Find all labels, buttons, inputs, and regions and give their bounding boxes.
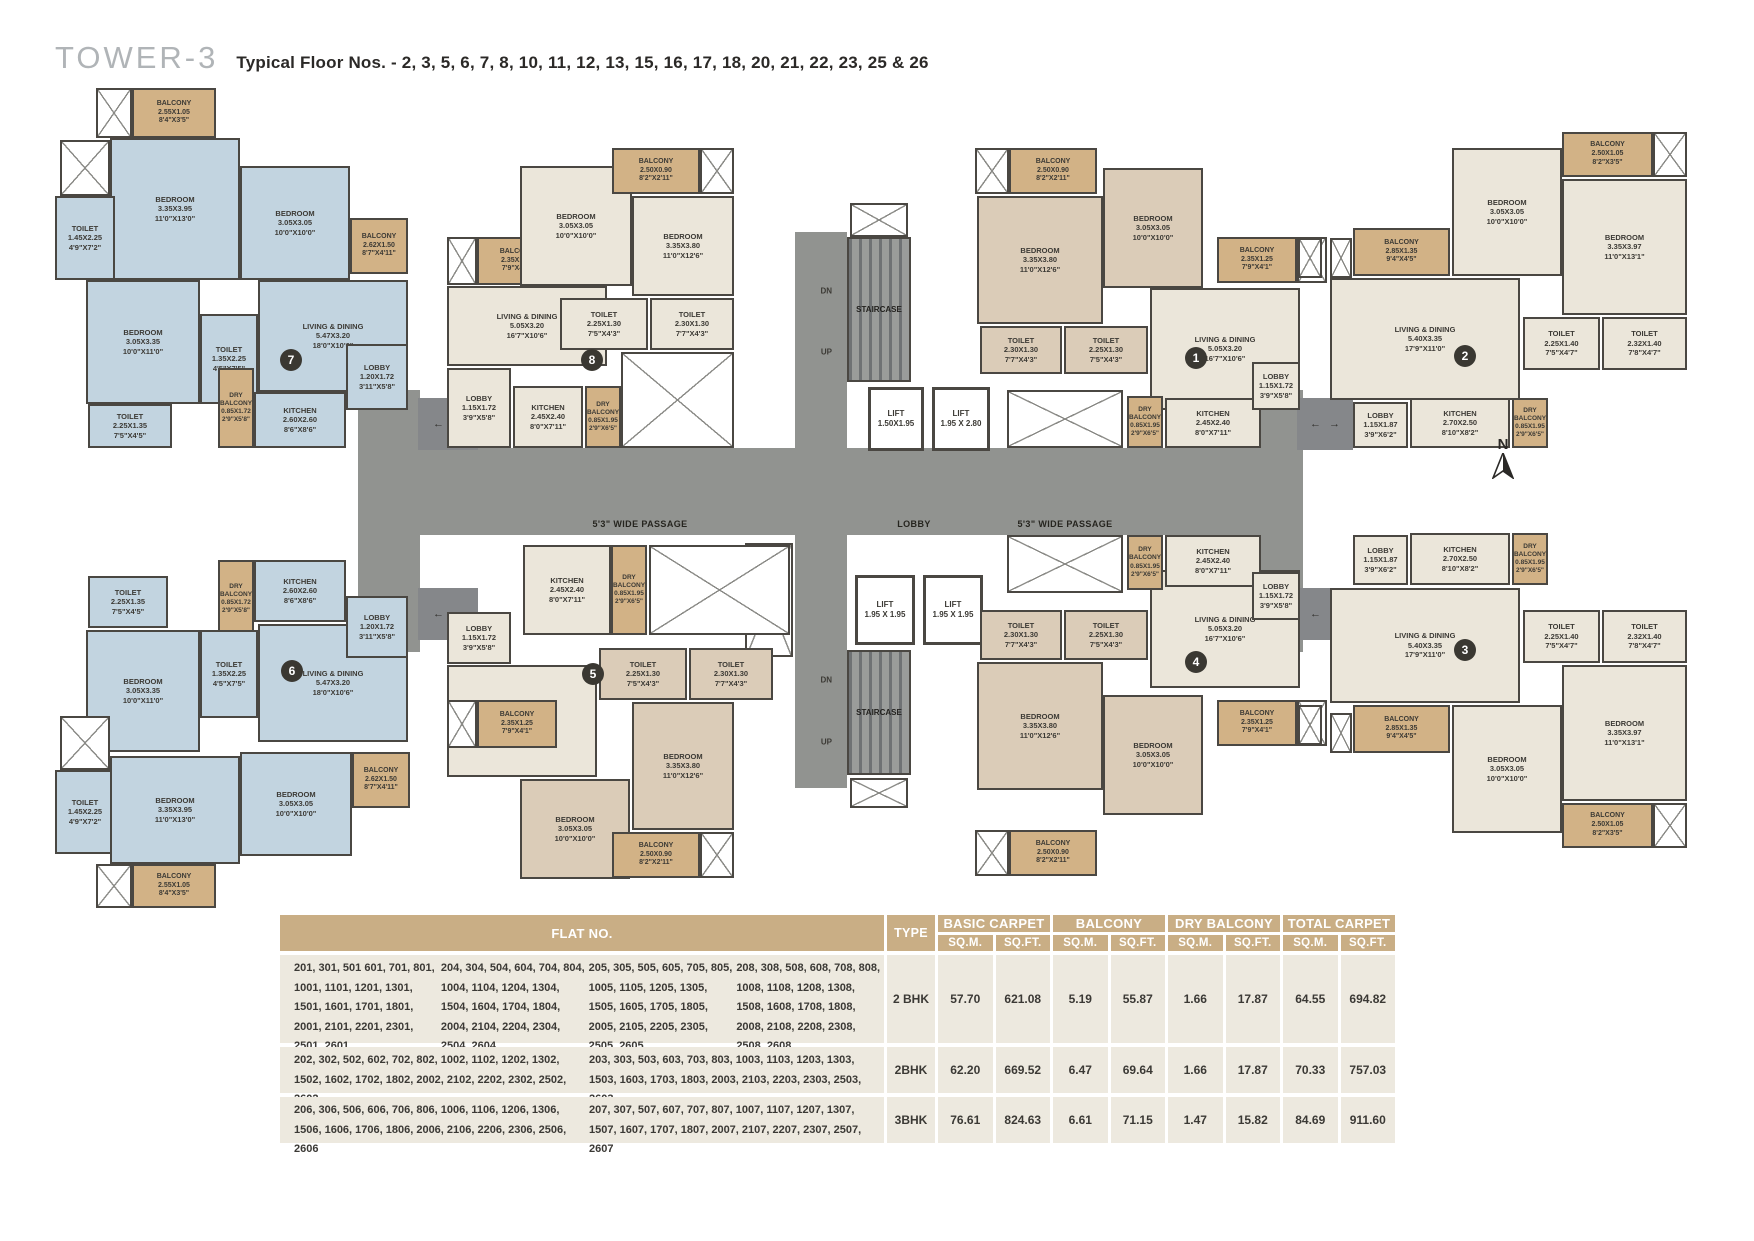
unit4-balcony: BALCONY2.50X0.908'2"X2'11" bbox=[1009, 830, 1097, 876]
unit6-bedroom: BEDROOM3.35X3.9511'0"X13'0" bbox=[110, 756, 240, 864]
area-table: FLAT NO. TYPE BASIC CARPETSQ.M.SQ.FT.BAL… bbox=[280, 915, 1398, 1143]
arrow-left-icon: ← bbox=[1310, 608, 1321, 620]
corridor-label: LOBBY bbox=[897, 519, 931, 529]
north-arrow-icon bbox=[1492, 453, 1514, 479]
unit4-bedroom: BEDROOM3.35X3.8011'0"X12'6" bbox=[977, 662, 1103, 790]
stair-direction-label: DN bbox=[820, 676, 832, 685]
unit5-duct-shaft bbox=[700, 832, 734, 878]
unit1-kitchen: KITCHEN2.45X2.408'0"X7'11" bbox=[1165, 398, 1261, 448]
flat-numbers-line: 201, 301, 501 601, 701, 801, 1001, 1101,… bbox=[294, 959, 441, 1057]
unit1-dry: DRYBALCONY0.85X1.952'9"X6'5" bbox=[1127, 396, 1163, 448]
unit7-bedroom: BEDROOM3.05X3.0510'0"X10'0" bbox=[240, 166, 350, 280]
unit3-dry: DRYBALCONY0.85X1.952'9"X6'5" bbox=[1512, 533, 1548, 585]
arrow-right-icon: → bbox=[1329, 418, 1340, 430]
flat-numbers-cell: 202, 302, 502, 602, 702, 802, 1002, 1102… bbox=[280, 1047, 884, 1093]
unit4-kitchen: KITCHEN2.45X2.408'0"X7'11" bbox=[1165, 535, 1261, 587]
unit6-balcony: BALCONY2.55X1.058'4"X3'5" bbox=[132, 864, 216, 908]
area-value-cell: 57.70 bbox=[938, 955, 993, 1043]
unit3-toilet: TOILET2.25X1.407'5"X4'7" bbox=[1523, 610, 1600, 663]
subheader-balcony-sq-m: SQ.M. bbox=[1053, 935, 1108, 951]
unit3-toilet: TOILET2.32X1.407'8"X4'7" bbox=[1602, 610, 1687, 663]
unit5-balcony: BALCONY2.35X1.257'9"X4'1" bbox=[477, 700, 557, 748]
unit7-lobby: LOBBY1.20X1.723'11"X5'8" bbox=[346, 344, 408, 410]
unit7-bedroom: BEDROOM3.35X3.9511'0"X13'0" bbox=[110, 138, 240, 280]
arrow-left-icon: ← bbox=[433, 418, 444, 430]
unit1-toilet: TOILET2.30X1.307'7"X4'3" bbox=[980, 326, 1062, 374]
unit1-bedroom: BEDROOM3.35X3.8011'0"X12'6" bbox=[977, 196, 1103, 324]
unit3-duct-shaft bbox=[1298, 705, 1322, 745]
unit6-bedroom: BEDROOM3.05X3.0510'0"X10'0" bbox=[240, 752, 352, 856]
unit7-bedroom: BEDROOM3.05X3.3510'0"X11'0" bbox=[86, 280, 200, 404]
subheader-total-carpet-sq-ft: SQ.FT. bbox=[1341, 935, 1396, 951]
unit6-dry: DRYBALCONY0.85X1.722'9"X5'8" bbox=[218, 560, 254, 638]
unit4-duct-shaft bbox=[975, 830, 1009, 876]
unit5-dry: DRYBALCONY0.85X1.952'9"X6'5" bbox=[611, 545, 647, 635]
flat-numbers-line: 206, 306, 506, 606, 706, 806, 1006, 1106… bbox=[294, 1101, 589, 1160]
area-value-cell: 17.87 bbox=[1226, 1047, 1281, 1093]
unit6-duct-shaft bbox=[60, 716, 110, 770]
area-value-cell: 70.33 bbox=[1283, 1047, 1338, 1093]
unit-number-badge: 8 bbox=[581, 349, 603, 371]
unit8-toilet: TOILET2.25X1.307'5"X4'3" bbox=[560, 298, 648, 350]
area-value-cell: 1.66 bbox=[1168, 955, 1223, 1043]
unit3-duct-shaft bbox=[1330, 713, 1352, 753]
area-value-cell: 5.19 bbox=[1053, 955, 1108, 1043]
unit4-duct-shaft bbox=[1007, 535, 1123, 593]
unit7-toilet: TOILET1.45X2.254'9"X7'2" bbox=[55, 196, 115, 280]
subheader-balcony-sq-ft: SQ.FT. bbox=[1111, 935, 1166, 951]
unit5-bedroom: BEDROOM3.35X3.8011'0"X12'6" bbox=[632, 702, 734, 830]
unit6-kitchen: KITCHEN2.60X2.608'6"X8'6" bbox=[254, 560, 346, 622]
unit6-toilet: TOILET1.35X2.254'5"X7'5" bbox=[200, 630, 258, 718]
unit-number-badge: 3 bbox=[1454, 639, 1476, 661]
duct-shaft bbox=[850, 203, 908, 237]
unit6-balcony: BALCONY2.62X1.508'7"X4'11" bbox=[352, 752, 410, 808]
area-value-cell: 6.47 bbox=[1053, 1047, 1108, 1093]
core-corridor bbox=[795, 232, 847, 788]
flat-numbers-line: 205, 305, 505, 605, 705, 805, 1005, 1105… bbox=[589, 959, 737, 1057]
unit3-kitchen: KITCHEN2.70X2.508'10"X8'2" bbox=[1410, 533, 1510, 585]
entry-vestibule: ←→ bbox=[1297, 398, 1353, 450]
flat-numbers-line: 207, 307, 507, 607, 707, 807, 1007, 1107… bbox=[589, 1101, 884, 1160]
unit2-bedroom: BEDROOM3.05X3.0510'0"X10'0" bbox=[1452, 148, 1562, 276]
unit4-bedroom: BEDROOM3.05X3.0510'0"X10'0" bbox=[1103, 695, 1203, 815]
unit5-lobby: LOBBY1.15X1.723'9"X5'8" bbox=[447, 612, 511, 664]
unit7-duct-shaft bbox=[60, 140, 110, 196]
area-value-cell: 71.15 bbox=[1111, 1097, 1166, 1143]
arrow-left-icon: ← bbox=[433, 608, 444, 620]
area-value-cell: 824.63 bbox=[996, 1097, 1051, 1143]
north-indicator: N bbox=[1486, 436, 1520, 479]
stair-direction-label: DN bbox=[820, 287, 832, 296]
unit4-balcony: BALCONY2.35X1.257'9"X4'1" bbox=[1217, 700, 1297, 746]
lift: LIFT1.95 X 1.95 bbox=[923, 575, 983, 645]
area-value-cell: 6.61 bbox=[1053, 1097, 1108, 1143]
unit-number-badge: 6 bbox=[281, 660, 303, 682]
header-balcony: BALCONY bbox=[1053, 915, 1165, 932]
unit4-toilet: TOILET2.30X1.307'7"X4'3" bbox=[980, 610, 1062, 660]
unit4-lobby: LOBBY1.15X1.723'9"X5'8" bbox=[1252, 572, 1300, 620]
flat-numbers-cell: 206, 306, 506, 606, 706, 806, 1006, 1106… bbox=[280, 1097, 884, 1143]
subheader-dry-balcony-sq-m: SQ.M. bbox=[1168, 935, 1223, 951]
unit6-lobby: LOBBY1.20X1.723'11"X5'8" bbox=[346, 596, 408, 658]
area-value-cell: 64.55 bbox=[1283, 955, 1338, 1043]
area-value-cell: 757.03 bbox=[1341, 1047, 1396, 1093]
unit6-duct-shaft bbox=[96, 864, 132, 908]
type-cell: 2BHK bbox=[887, 1047, 935, 1093]
unit-number-badge: 1 bbox=[1185, 347, 1207, 369]
unit-number-badge: 5 bbox=[582, 663, 604, 685]
unit4-dry: DRYBALCONY0.85X1.952'9"X6'5" bbox=[1127, 535, 1163, 590]
unit5-kitchen: KITCHEN2.45X2.408'0"X7'11" bbox=[523, 545, 611, 635]
unit3-balcony: BALCONY2.85X1.359'4"X4'5" bbox=[1353, 705, 1450, 753]
lift: LIFT1.95 X 2.80 bbox=[932, 387, 990, 451]
unit7-duct-shaft bbox=[96, 88, 132, 138]
unit5-balcony: BALCONY2.50X0.908'2"X2'11" bbox=[612, 832, 700, 878]
unit2-lobby: LOBBY1.15X1.873'9"X6'2" bbox=[1353, 402, 1408, 448]
unit1-lobby: LOBBY1.15X1.723'9"X5'8" bbox=[1252, 362, 1300, 410]
unit2-balcony: BALCONY2.85X1.359'4"X4'5" bbox=[1353, 228, 1450, 276]
table-row: 201, 301, 501 601, 701, 801, 1001, 1101,… bbox=[280, 955, 1398, 1043]
unit1-duct-shaft bbox=[975, 148, 1009, 194]
corridor-label: 5'3" WIDE PASSAGE bbox=[1017, 519, 1112, 529]
table-row: 206, 306, 506, 606, 706, 806, 1006, 1106… bbox=[280, 1097, 1398, 1143]
unit5-duct-shaft bbox=[447, 700, 477, 748]
area-value-cell: 69.64 bbox=[1111, 1047, 1166, 1093]
corridor-label: 5'3" WIDE PASSAGE bbox=[592, 519, 687, 529]
area-value-cell: 62.20 bbox=[938, 1047, 993, 1093]
unit3-living-dining: LIVING & DINING5.40X3.3517'9"X11'0" bbox=[1330, 588, 1520, 703]
unit8-dry: DRYBALCONY0.85X1.952'9"X6'5" bbox=[585, 386, 621, 448]
area-value-cell: 17.87 bbox=[1226, 955, 1281, 1043]
header-dry-balcony: DRY BALCONY bbox=[1168, 915, 1280, 932]
area-table-header: FLAT NO. TYPE BASIC CARPETSQ.M.SQ.FT.BAL… bbox=[280, 915, 1398, 951]
unit8-toilet: TOILET2.30X1.307'7"X4'3" bbox=[650, 298, 734, 350]
unit8-duct-shaft bbox=[700, 148, 734, 194]
unit8-duct-shaft bbox=[621, 352, 734, 448]
unit7-kitchen: KITCHEN2.60X2.608'6"X8'6" bbox=[254, 392, 346, 448]
area-value-cell: 15.82 bbox=[1226, 1097, 1281, 1143]
unit2-duct-shaft bbox=[1653, 132, 1687, 177]
unit7-balcony: BALCONY2.62X1.508'7"X4'11" bbox=[350, 218, 408, 274]
subheader-total-carpet-sq-m: SQ.M. bbox=[1283, 935, 1338, 951]
unit2-toilet: TOILET2.32X1.407'8"X4'7" bbox=[1602, 317, 1687, 370]
area-value-cell: 76.61 bbox=[938, 1097, 993, 1143]
table-row: 202, 302, 502, 602, 702, 802, 1002, 1102… bbox=[280, 1047, 1398, 1093]
unit8-kitchen: KITCHEN2.45X2.408'0"X7'11" bbox=[513, 386, 583, 448]
unit7-toilet: TOILET2.25X1.357'5"X4'5" bbox=[88, 404, 172, 448]
area-value-cell: 911.60 bbox=[1341, 1097, 1396, 1143]
type-cell: 2 BHK bbox=[887, 955, 935, 1043]
unit-number-badge: 7 bbox=[280, 349, 302, 371]
unit2-duct-shaft bbox=[1298, 238, 1322, 278]
unit5-duct-shaft bbox=[649, 545, 790, 635]
duct-shaft bbox=[850, 778, 908, 808]
unit1-toilet: TOILET2.25X1.307'5"X4'3" bbox=[1064, 326, 1148, 374]
unit1-balcony: BALCONY2.50X0.908'2"X2'11" bbox=[1009, 148, 1097, 194]
stair-direction-label: UP bbox=[821, 348, 832, 357]
unit8-bedroom: BEDROOM3.35X3.8011'0"X12'6" bbox=[632, 196, 734, 296]
unit6-toilet: TOILET2.25X1.357'5"X4'5" bbox=[88, 576, 168, 628]
unit1-balcony: BALCONY2.35X1.257'9"X4'1" bbox=[1217, 237, 1297, 283]
type-cell: 3BHK bbox=[887, 1097, 935, 1143]
unit3-duct-shaft bbox=[1653, 803, 1687, 848]
unit7-balcony: BALCONY2.55X1.058'4"X3'5" bbox=[132, 88, 216, 138]
unit1-bedroom: BEDROOM3.05X3.0510'0"X10'0" bbox=[1103, 168, 1203, 288]
area-value-cell: 621.08 bbox=[996, 955, 1051, 1043]
lift: LIFT1.95 X 1.95 bbox=[855, 575, 915, 645]
unit5-toilet: TOILET2.30X1.307'7"X4'3" bbox=[689, 648, 773, 700]
staircase: STAIRCASE bbox=[847, 650, 911, 775]
header-type: TYPE bbox=[887, 915, 935, 951]
flat-numbers-line: 204, 304, 504, 604, 704, 804, 1004, 1104… bbox=[441, 959, 589, 1057]
unit3-lobby: LOBBY1.15X1.873'9"X6'2" bbox=[1353, 535, 1408, 585]
unit2-duct-shaft bbox=[1330, 238, 1352, 278]
staircase: STAIRCASE bbox=[847, 237, 911, 382]
unit5-toilet: TOILET2.25X1.307'5"X4'3" bbox=[599, 648, 687, 700]
area-value-cell: 55.87 bbox=[1111, 955, 1166, 1043]
lift: LIFT1.50X1.95 bbox=[868, 387, 924, 451]
subheader-basic-carpet-sq-ft: SQ.FT. bbox=[996, 935, 1051, 951]
area-value-cell: 84.69 bbox=[1283, 1097, 1338, 1143]
unit7-dry: DRYBALCONY0.85X1.722'9"X5'8" bbox=[218, 368, 254, 448]
subheader-basic-carpet-sq-m: SQ.M. bbox=[938, 935, 993, 951]
unit1-duct-shaft bbox=[1007, 390, 1123, 448]
floor-plan-page: TOWER-3 Typical Floor Nos. - 2, 3, 5, 6,… bbox=[0, 0, 1754, 1241]
arrow-left-icon: ← bbox=[1310, 418, 1321, 430]
header-total-carpet: TOTAL CARPET bbox=[1283, 915, 1395, 932]
unit3-balcony: BALCONY2.50X1.058'2"X3'5" bbox=[1562, 803, 1653, 848]
stair-direction-label: UP bbox=[821, 738, 832, 747]
unit2-bedroom: BEDROOM3.35X3.9711'0"X13'1" bbox=[1562, 179, 1687, 315]
area-value-cell: 694.82 bbox=[1341, 955, 1396, 1043]
flat-numbers-cell: 201, 301, 501 601, 701, 801, 1001, 1101,… bbox=[280, 955, 884, 1043]
flat-numbers-line: 208, 308, 508, 608, 708, 808, 1008, 1108… bbox=[736, 959, 884, 1057]
area-value-cell: 1.66 bbox=[1168, 1047, 1223, 1093]
north-label: N bbox=[1486, 436, 1520, 453]
area-value-cell: 669.52 bbox=[996, 1047, 1051, 1093]
unit6-toilet: TOILET1.45X2.254'9"X7'2" bbox=[55, 770, 115, 854]
unit-number-badge: 4 bbox=[1185, 651, 1207, 673]
unit3-bedroom: BEDROOM3.35X3.9711'0"X13'1" bbox=[1562, 665, 1687, 801]
unit8-lobby: LOBBY1.15X1.723'9"X5'8" bbox=[447, 368, 511, 448]
unit2-balcony: BALCONY2.50X1.058'2"X3'5" bbox=[1562, 132, 1653, 177]
unit-number-badge: 2 bbox=[1454, 345, 1476, 367]
unit8-balcony: BALCONY2.50X0.908'2"X2'11" bbox=[612, 148, 700, 194]
area-table-body: 201, 301, 501 601, 701, 801, 1001, 1101,… bbox=[280, 955, 1398, 1143]
unit4-toilet: TOILET2.25X1.307'5"X4'3" bbox=[1064, 610, 1148, 660]
unit2-living-dining: LIVING & DINING5.40X3.3517'9"X11'0" bbox=[1330, 278, 1520, 400]
unit8-duct-shaft bbox=[447, 237, 477, 285]
unit3-bedroom: BEDROOM3.05X3.0510'0"X10'0" bbox=[1452, 705, 1562, 833]
header-flat-no: FLAT NO. bbox=[280, 915, 884, 951]
area-value-cell: 1.47 bbox=[1168, 1097, 1223, 1143]
unit2-toilet: TOILET2.25X1.407'5"X4'7" bbox=[1523, 317, 1600, 370]
header-basic-carpet: BASIC CARPET bbox=[938, 915, 1050, 932]
subheader-dry-balcony-sq-ft: SQ.FT. bbox=[1226, 935, 1281, 951]
